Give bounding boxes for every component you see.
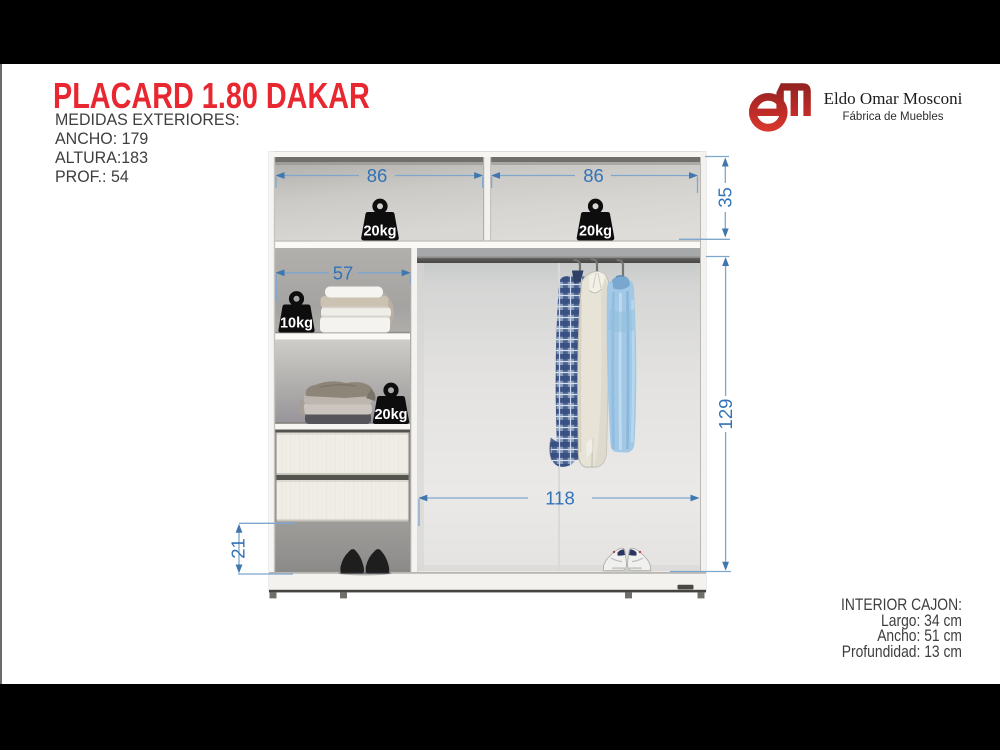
svg-text:57: 57 xyxy=(333,262,354,283)
svg-text:35: 35 xyxy=(715,187,736,208)
svg-text:20kg: 20kg xyxy=(579,224,612,240)
svg-text:10kg: 10kg xyxy=(280,316,313,332)
svg-text:20kg: 20kg xyxy=(363,224,396,240)
svg-text:20kg: 20kg xyxy=(374,407,407,423)
svg-text:129: 129 xyxy=(715,399,736,430)
svg-text:86: 86 xyxy=(583,165,604,186)
svg-text:21: 21 xyxy=(228,538,249,559)
svg-text:118: 118 xyxy=(545,488,575,509)
svg-text:86: 86 xyxy=(367,165,388,186)
